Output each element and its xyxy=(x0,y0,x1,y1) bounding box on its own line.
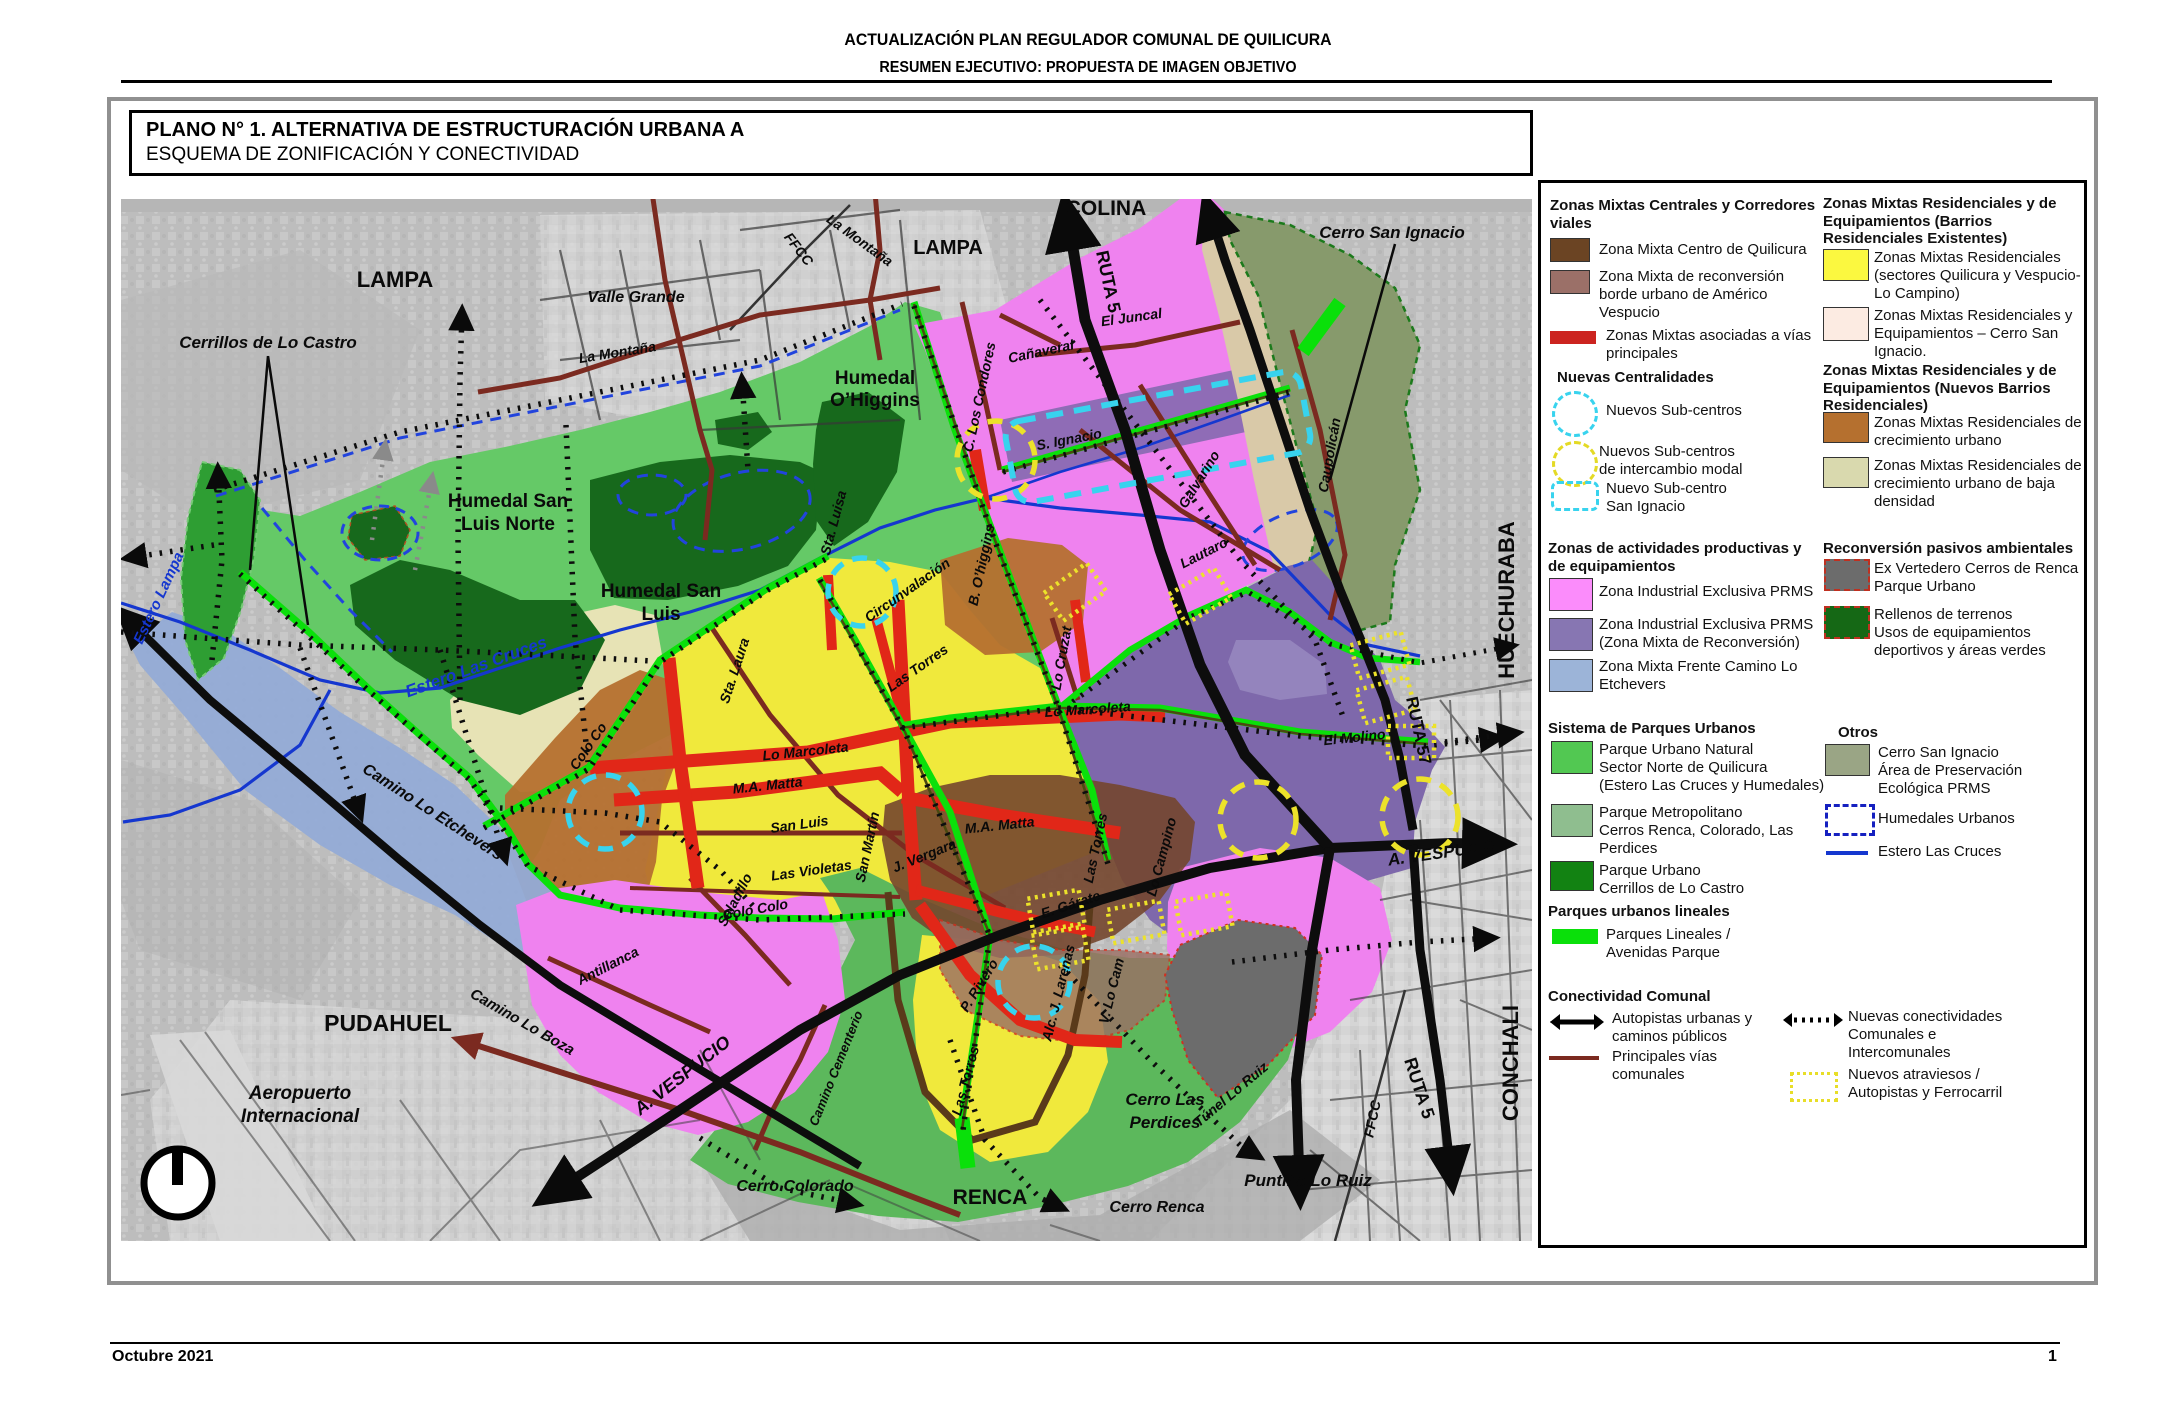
svg-text:Cerro Colorado: Cerro Colorado xyxy=(736,1178,854,1195)
svg-text:HUECHURABA: HUECHURABA xyxy=(1494,521,1519,679)
svg-text:Cerro Renca: Cerro Renca xyxy=(1109,1199,1204,1216)
svg-text:Puntilla Lo Ruiz: Puntilla Lo Ruiz xyxy=(1244,1171,1372,1190)
svg-text:Humedal San: Humedal San xyxy=(448,491,568,512)
svg-text:Luis Norte: Luis Norte xyxy=(461,514,555,535)
svg-text:Luis: Luis xyxy=(641,604,680,625)
svg-text:Cerrillos de Lo Castro: Cerrillos de Lo Castro xyxy=(179,333,357,352)
svg-text:RENCA: RENCA xyxy=(953,1186,1028,1209)
svg-text:Humedal: Humedal xyxy=(835,368,915,389)
svg-text:Aeropuerto: Aeropuerto xyxy=(248,1083,351,1104)
svg-text:Cerro San Ignacio: Cerro San Ignacio xyxy=(1319,223,1464,242)
svg-text:LAMPA: LAMPA xyxy=(913,237,983,259)
svg-text:PUDAHUEL: PUDAHUEL xyxy=(324,1010,452,1036)
svg-text:CONCHALI: CONCHALI xyxy=(1498,1005,1523,1121)
svg-text:Perdices: Perdices xyxy=(1130,1113,1201,1132)
svg-text:O’Higgins: O’Higgins xyxy=(830,390,920,411)
svg-text:Cerro Las: Cerro Las xyxy=(1125,1090,1204,1109)
svg-text:Humedal San: Humedal San xyxy=(601,581,721,602)
svg-text:Internacional: Internacional xyxy=(241,1106,360,1127)
svg-text:LAMPA: LAMPA xyxy=(357,267,434,292)
svg-text:Valle Grande: Valle Grande xyxy=(587,289,684,306)
svg-text:COLINA: COLINA xyxy=(1066,199,1147,220)
